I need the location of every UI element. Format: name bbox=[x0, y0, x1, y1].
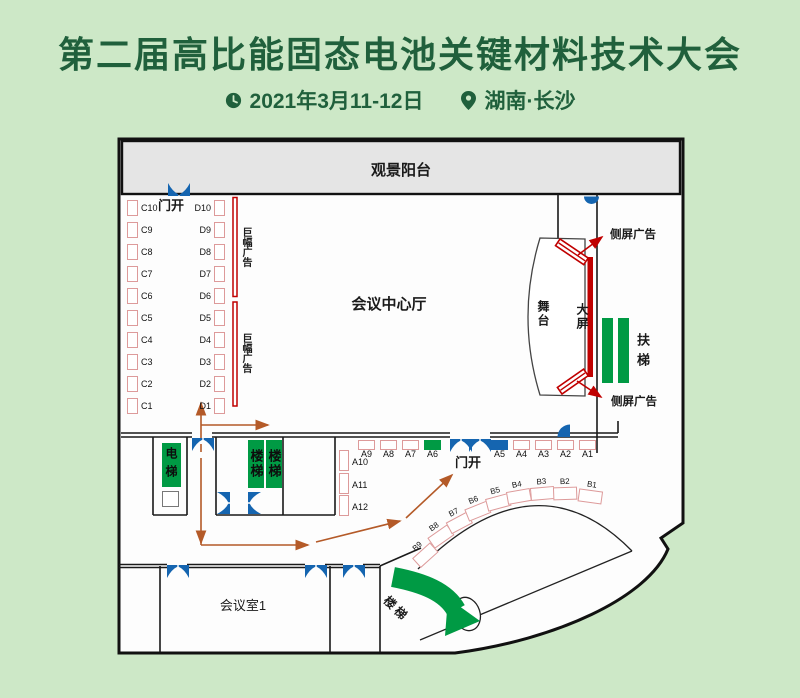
booth-box bbox=[127, 332, 138, 348]
booth-label: D10 bbox=[185, 204, 211, 213]
booth-label: A10 bbox=[352, 458, 368, 467]
booth-d6: D6 bbox=[185, 288, 225, 304]
booth-c5: C5 bbox=[127, 310, 153, 326]
date-text: 2021年3月11-12日 bbox=[250, 85, 424, 115]
booth-box bbox=[339, 473, 349, 494]
booth-box bbox=[127, 376, 138, 392]
booth-label: D8 bbox=[185, 248, 211, 257]
booth-label: C9 bbox=[141, 226, 153, 235]
stairs-box-right: 楼梯 bbox=[266, 440, 282, 488]
booth-label: C6 bbox=[141, 292, 153, 301]
booth-box bbox=[127, 266, 138, 282]
banner-ad-top-bracket bbox=[233, 198, 237, 297]
booth-box bbox=[214, 266, 225, 282]
booth-c10: C10 bbox=[127, 200, 158, 216]
date-item: 2021年3月11-12日 bbox=[225, 85, 424, 115]
door-open-label-top: 门开 bbox=[158, 195, 184, 214]
booth-label: A11 bbox=[352, 481, 367, 490]
banner-ad-label-bottom: 巨幅广告 bbox=[238, 333, 253, 373]
booth-d8: D8 bbox=[185, 244, 225, 260]
booth-label: C7 bbox=[141, 270, 153, 279]
booth-label: D1 bbox=[185, 402, 211, 411]
booth-label: D3 bbox=[185, 358, 211, 367]
subtitle-row: 2021年3月11-12日 湖南·长沙 bbox=[0, 85, 800, 115]
booth-box bbox=[214, 288, 225, 304]
booth-label: D7 bbox=[185, 270, 211, 279]
booth-c7: C7 bbox=[127, 266, 153, 282]
booth-box bbox=[127, 200, 138, 216]
stairs-box-left: 楼梯 bbox=[248, 440, 264, 488]
booth-d9: D9 bbox=[185, 222, 225, 238]
booth-label: C1 bbox=[141, 402, 153, 411]
door-open-label-bottom: 门开 bbox=[448, 452, 488, 471]
booth-a5: A5 bbox=[491, 440, 508, 459]
booth-box bbox=[214, 310, 225, 326]
booth-label: A4 bbox=[516, 450, 527, 459]
location-text: 湖南·长沙 bbox=[484, 85, 575, 115]
escalator-bar bbox=[618, 318, 629, 383]
booth-label: A7 bbox=[405, 450, 416, 459]
elevator-box: 电梯 bbox=[162, 443, 181, 487]
booth-label: C8 bbox=[141, 248, 153, 257]
booth-label: A12 bbox=[352, 503, 368, 512]
booth-label: A8 bbox=[383, 450, 394, 459]
booth-box bbox=[214, 200, 225, 216]
booth-box bbox=[214, 244, 225, 260]
booth-box bbox=[127, 288, 138, 304]
booth-label: A1 bbox=[582, 450, 593, 459]
balcony-label: 观景阳台 bbox=[122, 159, 680, 180]
escalator-bar bbox=[602, 318, 613, 383]
booth-box bbox=[214, 332, 225, 348]
booth-box bbox=[214, 376, 225, 392]
booth-d1: D1 bbox=[185, 398, 225, 414]
booth-box bbox=[214, 398, 225, 414]
booth-label: D2 bbox=[185, 380, 211, 389]
booth-label: D9 bbox=[185, 226, 211, 235]
side-screen-label-top: 侧屏广告 bbox=[610, 226, 656, 242]
booth-label: C3 bbox=[141, 358, 153, 367]
escalator-label: 扶梯 bbox=[633, 333, 652, 373]
booth-label: B3 bbox=[536, 477, 547, 487]
floor-plan-page: 第二届高比能固态电池关键材料技术大会 2021年3月11-12日 湖南·长沙 bbox=[0, 0, 800, 698]
booth-c2: C2 bbox=[127, 376, 153, 392]
booth-label: C2 bbox=[141, 380, 153, 389]
booth-label: A3 bbox=[538, 450, 549, 459]
booth-label: D6 bbox=[185, 292, 211, 301]
booth-label: B2 bbox=[560, 477, 570, 486]
booth-label: B1 bbox=[586, 479, 597, 489]
booth-a10: A10 bbox=[339, 450, 368, 471]
booth-box bbox=[127, 244, 138, 260]
booth-box bbox=[127, 222, 138, 238]
booth-a1: A1 bbox=[579, 440, 596, 459]
banner-ad-bottom-bracket bbox=[233, 302, 237, 406]
booth-a2: A2 bbox=[557, 440, 574, 459]
banner-ad-label-top: 巨幅广告 bbox=[238, 227, 253, 267]
booth-d5: D5 bbox=[185, 310, 225, 326]
clock-icon bbox=[225, 92, 242, 109]
booth-label: A2 bbox=[560, 450, 571, 459]
booth-d7: D7 bbox=[185, 266, 225, 282]
booth-label: C10 bbox=[141, 204, 158, 213]
booth-label: D5 bbox=[185, 314, 211, 323]
booth-a11: A11 bbox=[339, 473, 367, 494]
booth-c9: C9 bbox=[127, 222, 153, 238]
page-title: 第二届高比能固态电池关键材料技术大会 bbox=[0, 26, 800, 78]
booth-label: A5 bbox=[494, 450, 505, 459]
booth-box bbox=[214, 222, 225, 238]
booth-c1: C1 bbox=[127, 398, 153, 414]
location-item: 湖南·长沙 bbox=[461, 85, 575, 115]
booth-label: A6 bbox=[427, 450, 438, 459]
booth-c8: C8 bbox=[127, 244, 153, 260]
booth-box bbox=[339, 495, 349, 516]
booth-d10: D10 bbox=[185, 200, 225, 216]
booth-box bbox=[553, 487, 577, 501]
booth-box bbox=[214, 354, 225, 370]
booth-a3: A3 bbox=[535, 440, 552, 459]
booth-d2: D2 bbox=[185, 376, 225, 392]
big-screen-label: 大屏 bbox=[574, 303, 591, 331]
location-pin-icon bbox=[461, 91, 476, 110]
booth-b1: B1 bbox=[577, 478, 606, 504]
booth-label: B4 bbox=[511, 479, 522, 490]
booth-a12: A12 bbox=[339, 495, 368, 516]
booth-d4: D4 bbox=[185, 332, 225, 348]
elevator-small-box bbox=[162, 491, 179, 507]
booth-c4: C4 bbox=[127, 332, 153, 348]
booth-label: C4 bbox=[141, 336, 153, 345]
booth-box bbox=[127, 310, 138, 326]
booth-box bbox=[127, 354, 138, 370]
hall-label: 会议中心厅 bbox=[329, 293, 449, 314]
booth-c6: C6 bbox=[127, 288, 153, 304]
stage-label: 舞台 bbox=[535, 300, 552, 328]
booth-a6: A6 bbox=[424, 440, 441, 459]
booth-label: D4 bbox=[185, 336, 211, 345]
booth-a7: A7 bbox=[402, 440, 419, 459]
booth-label: C5 bbox=[141, 314, 153, 323]
side-screen-label-bottom: 侧屏广告 bbox=[611, 393, 657, 409]
booth-box bbox=[127, 398, 138, 414]
booth-a4: A4 bbox=[513, 440, 530, 459]
booth-a8: A8 bbox=[380, 440, 397, 459]
booth-box bbox=[339, 450, 349, 471]
booth-c3: C3 bbox=[127, 354, 153, 370]
booth-d3: D3 bbox=[185, 354, 225, 370]
meeting-room-label: 会议室1 bbox=[195, 595, 291, 614]
booth-b2: B2 bbox=[552, 477, 579, 501]
